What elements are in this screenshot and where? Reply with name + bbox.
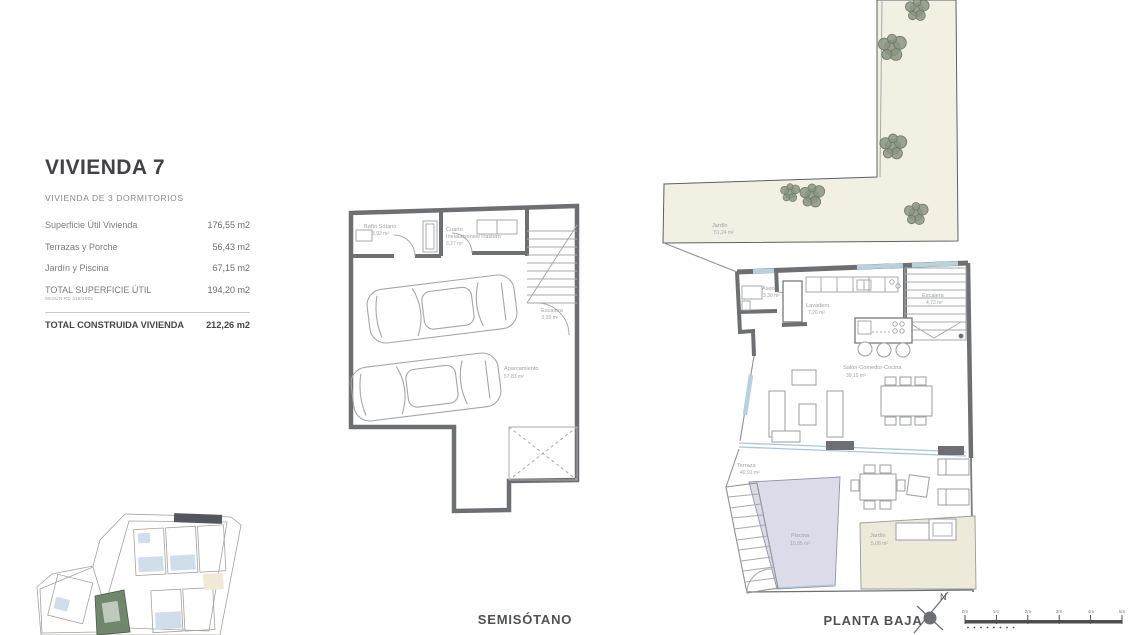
room-area-cuarto: 6,27 m² bbox=[446, 241, 463, 247]
semisotano-outline bbox=[351, 206, 577, 511]
car-icon bbox=[349, 351, 502, 423]
total-row: TOTAL CONSTRUIDA VIVIENDA 212,26 m2 bbox=[45, 312, 250, 330]
scale-tick-3: 3m bbox=[1056, 609, 1063, 614]
row-label: Terrazas y Porche bbox=[45, 242, 118, 252]
page-subtitle: VIVIENDA DE 3 DORMITORIOS bbox=[45, 193, 250, 203]
room-label-cuarto-2: Instalaciones/Trastero bbox=[446, 234, 501, 240]
surface-table: Superficie Útil Vivienda 176,55 m2 Terra… bbox=[45, 220, 250, 301]
kitchen-counter-icon bbox=[806, 277, 900, 292]
garage-door-icon bbox=[509, 427, 577, 480]
room-label-lavadero: Lavadero bbox=[806, 303, 829, 309]
room-label-piscina: Piscina bbox=[791, 533, 810, 539]
side-table-icon bbox=[907, 475, 930, 498]
row-label: TOTAL SUPERFICIE ÚTIL bbox=[45, 285, 151, 295]
scale-tick-4: 4m bbox=[1088, 609, 1095, 614]
kitchen-island-icon bbox=[855, 318, 912, 357]
info-panel: VIVIENDA 7 VIVIENDA DE 3 DORMITORIOS Sup… bbox=[45, 156, 250, 330]
glass-wall bbox=[739, 441, 966, 456]
site-plan-map bbox=[37, 513, 241, 635]
row-label: Superficie Útil Vivienda bbox=[45, 220, 137, 230]
room-label-aparcamiento: Aparcamiento bbox=[504, 366, 539, 372]
room-area-escalera: 2,39 m² bbox=[542, 315, 559, 321]
room-label-cuarto: Cuarto bbox=[446, 227, 463, 233]
sofa-icon bbox=[769, 370, 843, 437]
wardrobe-icon bbox=[783, 281, 802, 322]
room-area-bano: 3,92 m² bbox=[372, 231, 389, 237]
table-row: TOTAL SUPERFICIE ÚTIL SEGÚN RD 318/2005 … bbox=[45, 285, 250, 301]
row-value: 194,20 m2 bbox=[207, 285, 250, 295]
caption-semisotano: SEMISÓTANO bbox=[455, 612, 595, 627]
appliance-icon bbox=[477, 220, 497, 234]
row-value: 176,55 m2 bbox=[207, 220, 250, 230]
room-label-bano: Baño Sótano bbox=[364, 224, 396, 230]
north-label: N bbox=[940, 592, 947, 602]
room-area-jardin-priv: 5,08 m² bbox=[871, 541, 888, 547]
stairs-icon bbox=[527, 225, 577, 303]
site-map-banner bbox=[174, 513, 222, 524]
row-value: 67,15 m2 bbox=[212, 263, 250, 273]
room-area-escalera-pb: 4,73 m² bbox=[926, 300, 943, 306]
room-area-terraza: 40,91 m² bbox=[740, 470, 760, 476]
room-area-lavadero: 7,26 m² bbox=[808, 310, 825, 316]
planta-baja-plan: Jardín 51,24 m² Aseo 3,30 m² Lavadero 7,… bbox=[663, 0, 976, 593]
car-icon bbox=[365, 273, 518, 345]
room-area-aparcamiento: 57,83 m² bbox=[504, 374, 524, 380]
room-label-aseo: Aseo bbox=[762, 286, 775, 292]
sink-icon bbox=[356, 230, 372, 241]
room-label-jardin-priv: Jardín bbox=[870, 533, 886, 539]
room-label-salon: Salón-Comedor-Cocina bbox=[843, 365, 902, 371]
room-label-terraza: Terraza bbox=[737, 463, 757, 469]
semisotano-plan: Baño Sótano 3,92 m² Cuarto Instalaciones… bbox=[349, 206, 577, 511]
table-row: Superficie Útil Vivienda 176,55 m2 bbox=[45, 220, 250, 230]
room-area-salon: 39,15 m² bbox=[846, 373, 866, 379]
page-title: VIVIENDA 7 bbox=[45, 156, 250, 180]
shower-icon bbox=[423, 221, 437, 252]
table-row: Jardín y Piscina 67,15 m2 bbox=[45, 263, 250, 273]
planter-icon bbox=[772, 431, 800, 442]
row-note: SEGÚN RD 318/2005 bbox=[45, 296, 151, 301]
appliance-icon bbox=[497, 220, 517, 234]
outdoor-dining-icon bbox=[851, 465, 905, 509]
lounger-icon bbox=[938, 459, 969, 505]
total-value: 212,26 m2 bbox=[206, 320, 250, 330]
total-label: TOTAL CONSTRUIDA VIVIENDA bbox=[45, 320, 184, 330]
room-area-aseo: 3,30 m² bbox=[763, 293, 780, 299]
room-label-escalera-pb: Escalera bbox=[922, 293, 945, 299]
scale-bar: 0m 1m 2m 3m 4m 5m bbox=[962, 609, 1126, 628]
brochure-page: Baño Sótano 3,92 m² Cuarto Instalaciones… bbox=[0, 0, 1130, 635]
scale-tick-0: 0m bbox=[962, 609, 969, 614]
scale-tick-2: 2m bbox=[1025, 609, 1032, 614]
room-area-jardin: 51,24 m² bbox=[714, 230, 734, 236]
sink-icon bbox=[742, 286, 762, 299]
toilet-icon bbox=[742, 301, 750, 310]
caption-planta-baja: PLANTA BAJA bbox=[803, 613, 943, 628]
room-label-jardin: Jardín bbox=[712, 223, 728, 229]
room-label-escalera: Escalera bbox=[541, 308, 564, 314]
dining-table-icon bbox=[881, 377, 932, 425]
table-row: Terrazas y Porche 56,43 m2 bbox=[45, 242, 250, 252]
row-value: 56,43 m2 bbox=[212, 242, 250, 252]
room-area-piscina: 10,85 m² bbox=[790, 541, 810, 547]
scale-tick-5: 5m bbox=[1119, 609, 1126, 614]
door-arc bbox=[394, 235, 415, 256]
row-label: Jardín y Piscina bbox=[45, 263, 109, 273]
scale-tick-1: 1m bbox=[993, 609, 1000, 614]
